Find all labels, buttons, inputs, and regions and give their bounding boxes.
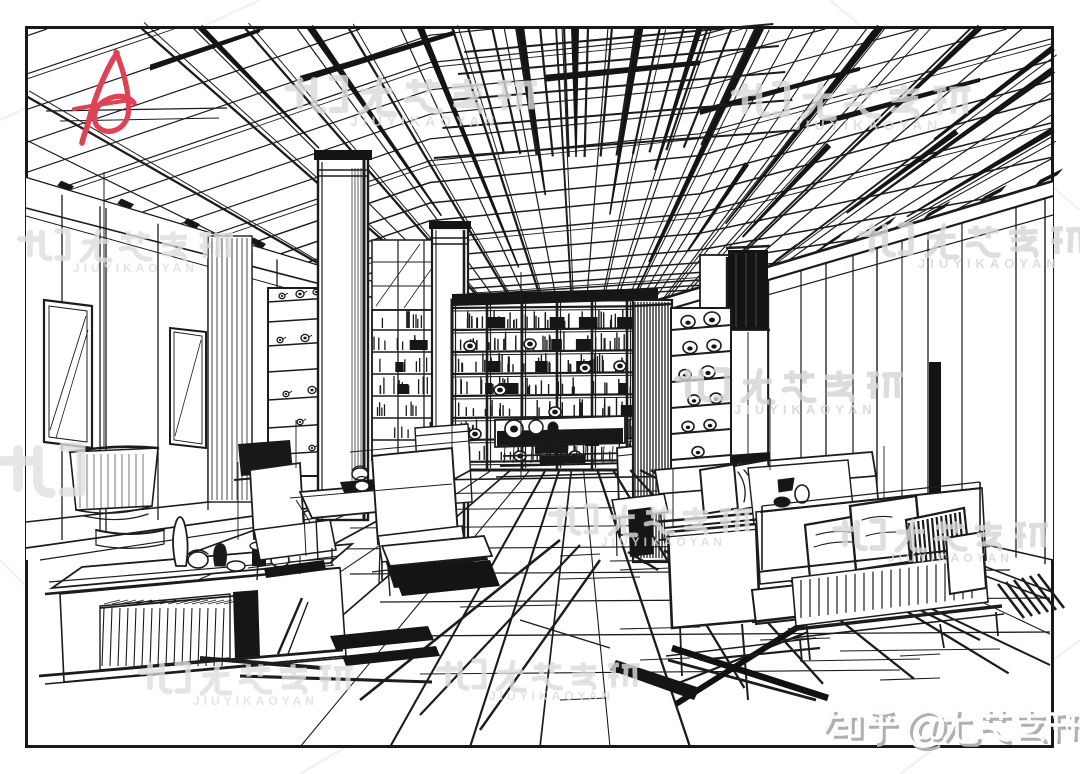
svg-text:JIUYIKAOYAN: JIUYIKAOYAN (793, 117, 942, 133)
svg-text:JIUYIKAOYAN: JIUYIKAOYAN (489, 689, 614, 703)
svg-text:JIUYIKAOYAN: JIUYIKAOYAN (734, 402, 877, 417)
svg-text:JIUYIKAOYAN: JIUYIKAOYAN (601, 535, 726, 549)
svg-text:@: @ (904, 702, 947, 751)
svg-text:JIUYIKAOYAN: JIUYIKAOYAN (73, 261, 198, 275)
svg-text:JIUYIKAOYAN: JIUYIKAOYAN (350, 113, 499, 129)
svg-text:JIUYIKAOYAN: JIUYIKAOYAN (888, 551, 1013, 565)
svg-text:JIUYIKAOYAN: JIUYIKAOYAN (918, 256, 1061, 271)
svg-text:JIUYIKAOYAN: JIUYIKAOYAN (193, 694, 318, 708)
